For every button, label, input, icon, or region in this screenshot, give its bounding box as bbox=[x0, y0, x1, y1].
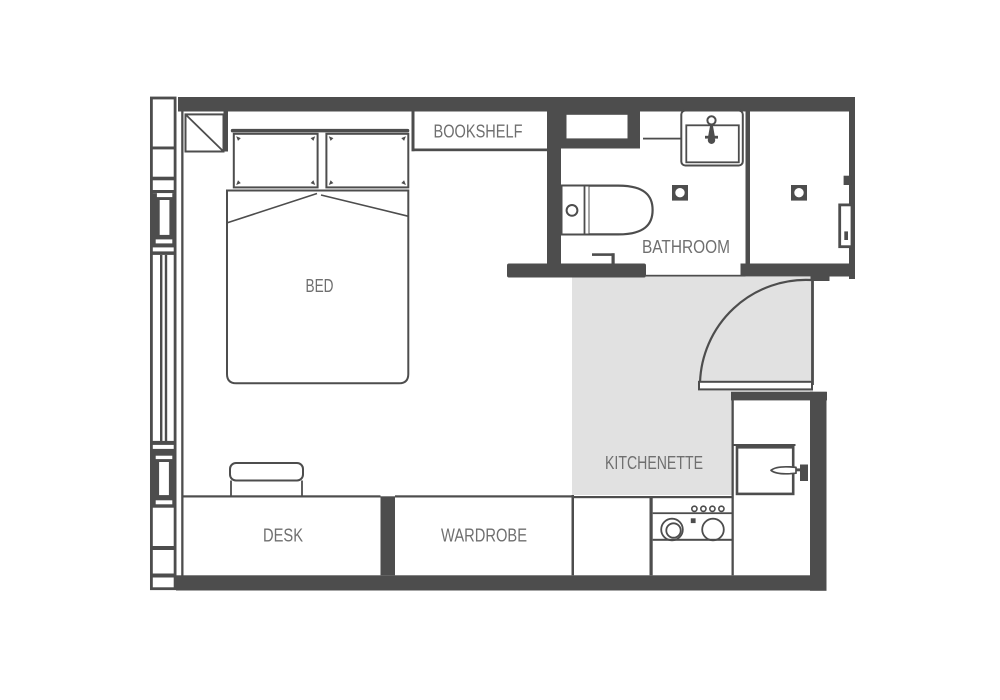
svg-text:BED: BED bbox=[306, 276, 334, 296]
svg-text:KITCHENETTE: KITCHENETTE bbox=[605, 453, 703, 473]
svg-text:BOOKSHELF: BOOKSHELF bbox=[434, 122, 523, 142]
svg-text:WARDROBE: WARDROBE bbox=[441, 526, 527, 546]
svg-text:DESK: DESK bbox=[263, 526, 303, 546]
svg-text:BATHROOM: BATHROOM bbox=[642, 237, 730, 257]
